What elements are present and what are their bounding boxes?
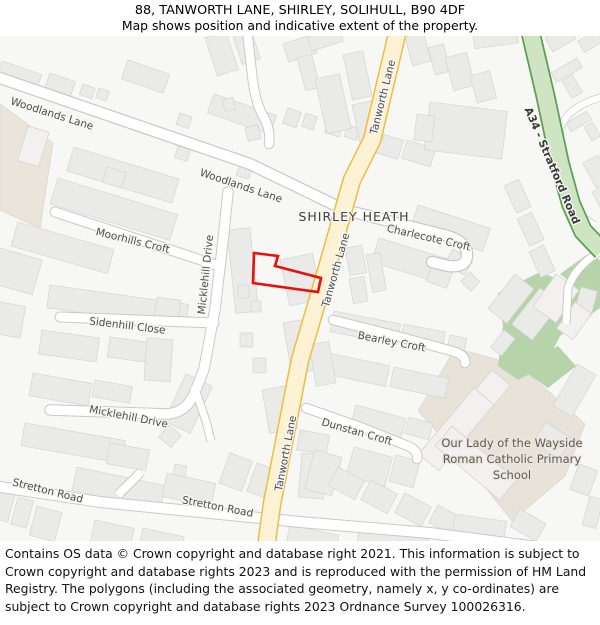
place-label-shirley-heath: SHIRLEY HEATH <box>298 209 409 224</box>
map-svg: Woodlands Lane Woodlands Lane Tanworth L… <box>0 36 600 541</box>
map-canvas: Woodlands Lane Woodlands Lane Tanworth L… <box>0 36 600 541</box>
school-label-line2: Roman Catholic Primary <box>443 452 582 466</box>
school-label-line1: Our Lady of the Wayside <box>441 436 582 450</box>
page-title: 88, TANWORTH LANE, SHIRLEY, SOLIHULL, B9… <box>0 0 600 19</box>
school-label-line3: School <box>493 468 531 482</box>
property-map-report: 88, TANWORTH LANE, SHIRLEY, SOLIHULL, B9… <box>0 0 600 625</box>
page-subtitle: Map shows position and indicative extent… <box>0 19 600 34</box>
copyright-footer: Contains OS data © Crown copyright and d… <box>0 541 600 615</box>
report-header: 88, TANWORTH LANE, SHIRLEY, SOLIHULL, B9… <box>0 0 600 36</box>
